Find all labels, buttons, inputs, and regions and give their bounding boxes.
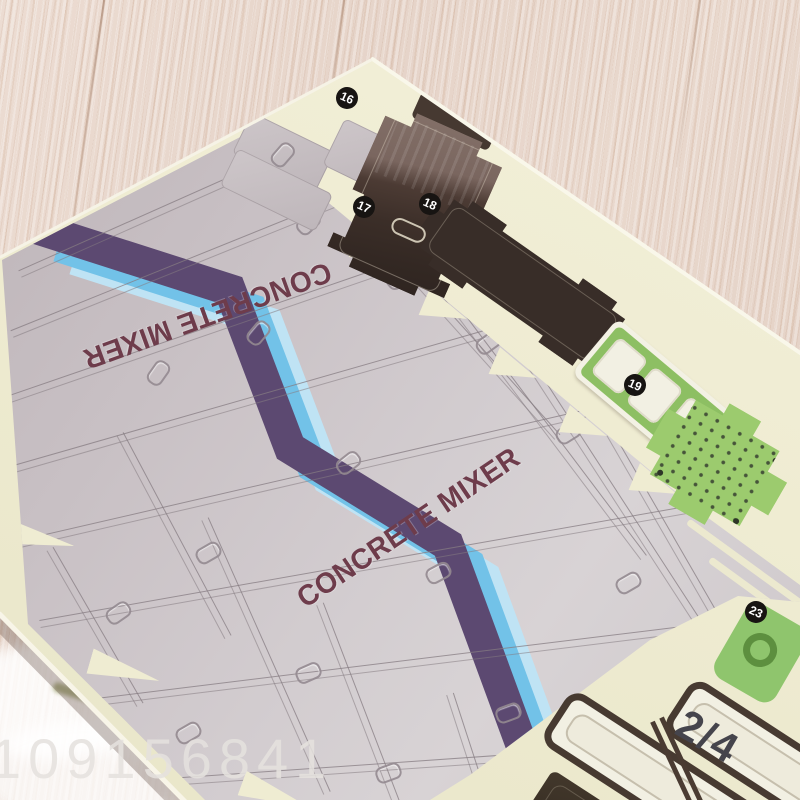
plank-seam (676, 0, 702, 167)
grille-corner-dot (771, 457, 779, 465)
punch-slot (244, 318, 274, 349)
punch-slot (103, 599, 134, 628)
cream-wedge (1, 518, 77, 558)
green-ring (737, 627, 783, 673)
badge-16: 16 (332, 83, 361, 112)
punch-slot (493, 701, 523, 726)
punch-slot (423, 559, 454, 586)
punch-slot (144, 357, 173, 388)
punch-slot (293, 660, 324, 686)
punch-slot (613, 569, 644, 597)
watermark: 109156841 (0, 726, 333, 791)
product-photo: CONCRETE MIXER CONCRETE MIXER (0, 0, 800, 800)
